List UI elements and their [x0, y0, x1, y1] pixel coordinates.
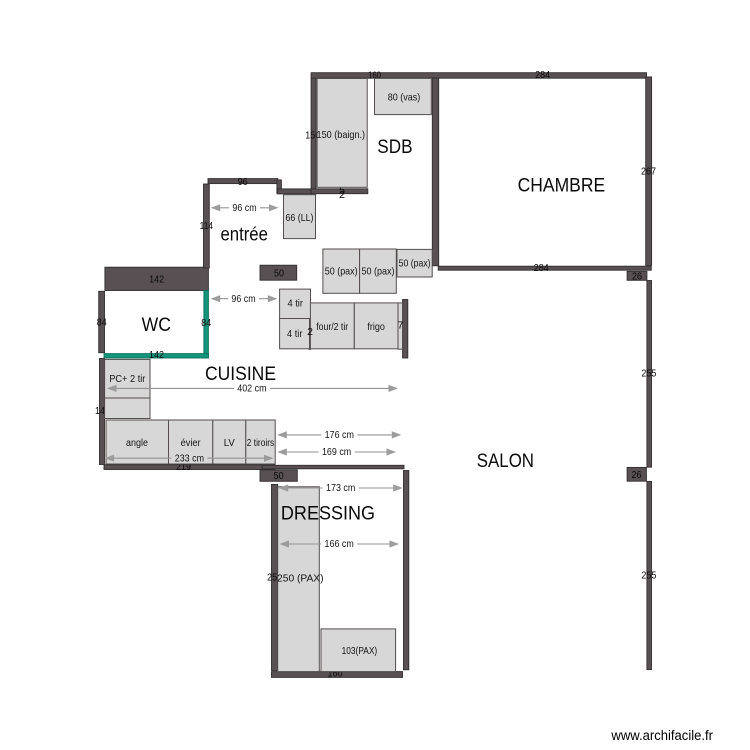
svg-text:7: 7: [397, 320, 403, 332]
svg-text:84: 84: [97, 316, 107, 328]
svg-text:84: 84: [201, 317, 211, 329]
svg-text:166 cm: 166 cm: [325, 538, 355, 550]
svg-text:96: 96: [238, 176, 248, 188]
svg-text:2: 2: [339, 189, 345, 201]
svg-text:255: 255: [641, 570, 656, 582]
svg-text:4 tir: 4 tir: [287, 328, 303, 340]
svg-text:96 cm: 96 cm: [231, 293, 255, 305]
svg-text:WC: WC: [142, 314, 171, 336]
svg-text:150 (baign.): 150 (baign.): [317, 129, 366, 141]
svg-text:four/2 tir: four/2 tir: [316, 321, 348, 333]
svg-text:250 (PAX): 250 (PAX): [277, 573, 324, 585]
svg-text:284: 284: [535, 69, 550, 81]
svg-text:169 cm: 169 cm: [322, 446, 352, 458]
svg-text:50 (pax): 50 (pax): [399, 258, 431, 270]
svg-text:4 tir: 4 tir: [288, 298, 304, 310]
svg-text:entrée: entrée: [220, 224, 268, 246]
svg-text:103(PAX): 103(PAX): [342, 645, 378, 657]
svg-text:SDB: SDB: [377, 136, 412, 158]
svg-text:66 (LL): 66 (LL): [286, 212, 314, 224]
svg-text:évier: évier: [181, 437, 201, 449]
svg-text:angle: angle: [126, 437, 148, 449]
svg-text:50 (pax): 50 (pax): [362, 266, 395, 278]
svg-text:26: 26: [632, 469, 642, 481]
svg-text:50: 50: [274, 267, 284, 279]
svg-text:142: 142: [149, 349, 164, 361]
svg-text:CUISINE: CUISINE: [205, 363, 276, 385]
svg-text:267: 267: [641, 165, 656, 177]
svg-text:176 cm: 176 cm: [325, 429, 355, 441]
svg-text:50: 50: [274, 470, 284, 482]
svg-text:114: 114: [200, 220, 214, 232]
svg-text:SALON: SALON: [477, 450, 534, 472]
svg-text:PC+ 2 tir: PC+ 2 tir: [109, 373, 146, 385]
svg-text:2 tiroirs: 2 tiroirs: [247, 437, 275, 449]
svg-text:173 cm: 173 cm: [326, 482, 356, 494]
svg-text:96 cm: 96 cm: [232, 202, 256, 214]
svg-text:233 cm: 233 cm: [175, 452, 205, 464]
svg-text:www.archifacile.fr: www.archifacile.fr: [610, 728, 713, 743]
svg-text:frigo: frigo: [367, 321, 385, 333]
svg-text:CHAMBRE: CHAMBRE: [518, 174, 606, 196]
svg-text:80 (vas): 80 (vas): [388, 92, 421, 104]
svg-text:2: 2: [307, 326, 313, 338]
svg-text:DRESSING: DRESSING: [281, 502, 375, 524]
svg-text:284: 284: [534, 262, 549, 274]
svg-text:LV: LV: [224, 437, 235, 449]
svg-text:50 (pax): 50 (pax): [325, 266, 358, 278]
svg-text:255: 255: [641, 368, 656, 380]
svg-text:26: 26: [632, 270, 642, 282]
svg-text:142: 142: [149, 273, 164, 285]
